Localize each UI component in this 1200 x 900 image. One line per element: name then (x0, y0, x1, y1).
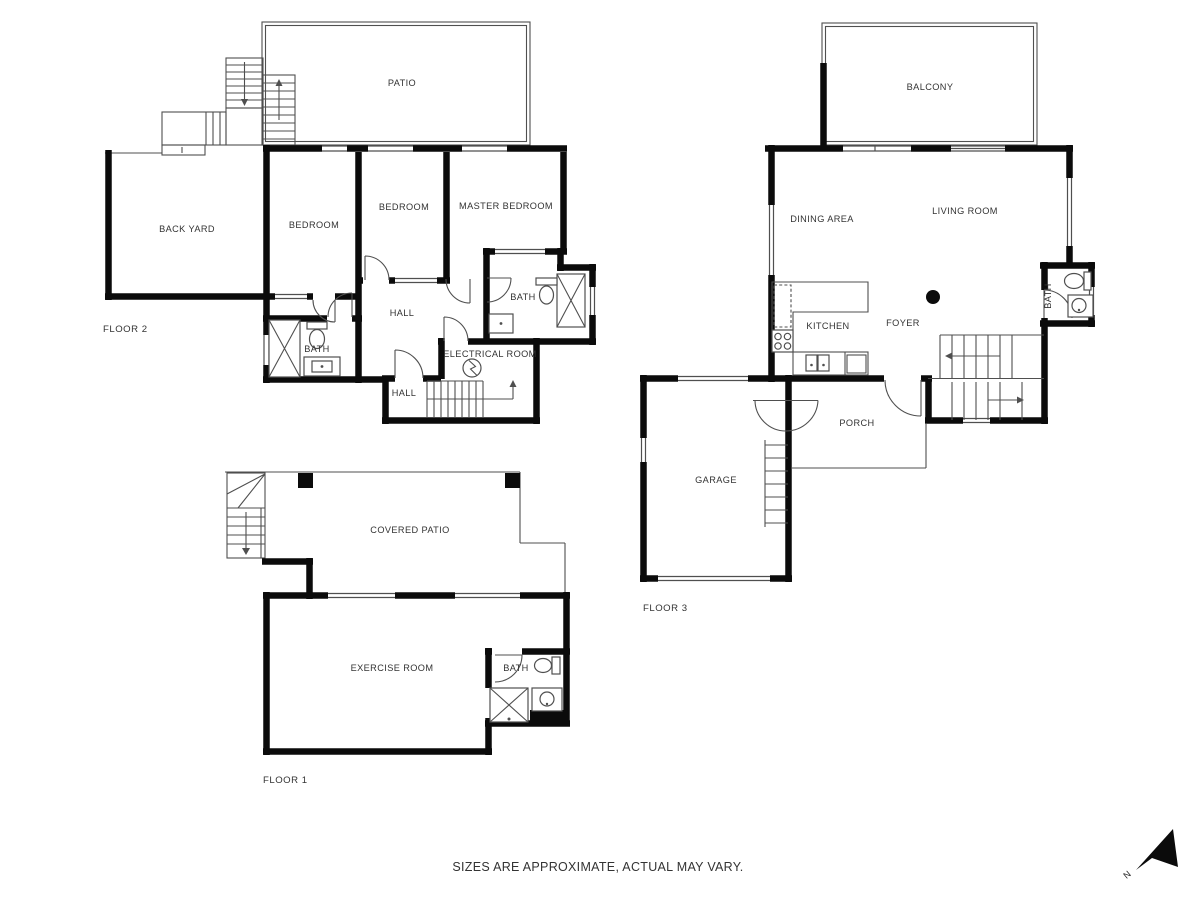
room-label-master-bedroom: MASTER BEDROOM (459, 201, 553, 211)
floor2-exterior-stairs (105, 58, 295, 155)
floor3-bath-fixtures (1065, 272, 1094, 317)
fridge-icon (774, 285, 791, 327)
room-label-dining: DINING AREA (790, 214, 854, 224)
north-label: N (1121, 869, 1132, 881)
electrical-panel-icon (463, 359, 481, 377)
room-label-bedroom-mid: BEDROOM (379, 202, 429, 212)
room-label-electrical: ELECTRICAL ROOM (443, 349, 536, 359)
floor1-walls (262, 558, 570, 755)
porch-outline (792, 424, 926, 468)
room-label-garage: GARAGE (695, 475, 737, 485)
room-label-back-yard: BACK YARD (159, 224, 215, 234)
patio-post (298, 473, 313, 488)
room-label-bedroom-left: BEDROOM (289, 220, 339, 230)
room-label-patio: PATIO (388, 78, 416, 88)
floor2-label: FLOOR 2 (103, 324, 148, 335)
garage-stairs (765, 440, 788, 527)
floor3-label: FLOOR 3 (643, 603, 688, 614)
room-label-bath-right: BATH (510, 292, 535, 302)
floor1-wall-fill (530, 710, 568, 724)
foyer-column (926, 290, 940, 304)
room-label-covered-patio: COVERED PATIO (370, 525, 449, 535)
compass: N (1121, 829, 1178, 881)
room-label-living: LIVING ROOM (932, 206, 998, 216)
room-label-foyer: FOYER (886, 318, 920, 328)
room-label-porch: PORCH (839, 418, 874, 428)
floor-plan-page: PATIO BACK YARD BEDROOM BEDROOM MASTER B… (0, 0, 1200, 900)
room-label-bath-f3: BATH (1043, 283, 1053, 308)
floor3-walls (640, 63, 1095, 582)
room-label-bath-f1: BATH (503, 663, 528, 673)
toilet-icon (1084, 272, 1091, 290)
toilet-icon (552, 657, 560, 674)
room-label-exercise: EXERCISE ROOM (351, 663, 434, 673)
floor1-plan: COVERED PATIO EXERCISE ROOM BATH FLOOR 1 (225, 472, 570, 786)
floor2-hall-stairs (427, 380, 517, 417)
floor-plan-drawing: PATIO BACK YARD BEDROOM BEDROOM MASTER B… (0, 0, 1200, 900)
floor2-plan: PATIO BACK YARD BEDROOM BEDROOM MASTER B… (103, 22, 596, 424)
floor2-walls (105, 145, 596, 424)
floor2-bath-right-fixtures (489, 274, 585, 333)
disclaimer-text: SIZES ARE APPROXIMATE, ACTUAL MAY VARY. (452, 860, 743, 874)
patio-post (505, 473, 520, 488)
room-label-balcony: BALCONY (907, 82, 954, 92)
toilet-icon (307, 322, 327, 329)
floor3-stairs (928, 335, 1044, 420)
floor3-plan: BALCONY DINING AREA LIVING ROOM KITCHEN … (640, 23, 1095, 614)
floor1-label: FLOOR 1 (263, 775, 308, 786)
toilet-icon (536, 278, 557, 285)
room-label-kitchen: KITCHEN (806, 321, 849, 331)
north-arrow-icon (1136, 829, 1178, 870)
room-label-bath-left: BATH (304, 344, 329, 354)
kitchen-sink-icon (806, 355, 817, 371)
room-label-hall-upper: HALL (390, 308, 415, 318)
floor1-stairs (227, 473, 265, 558)
floor3-doors (753, 290, 1072, 431)
room-label-hall-lower: HALL (392, 388, 417, 398)
